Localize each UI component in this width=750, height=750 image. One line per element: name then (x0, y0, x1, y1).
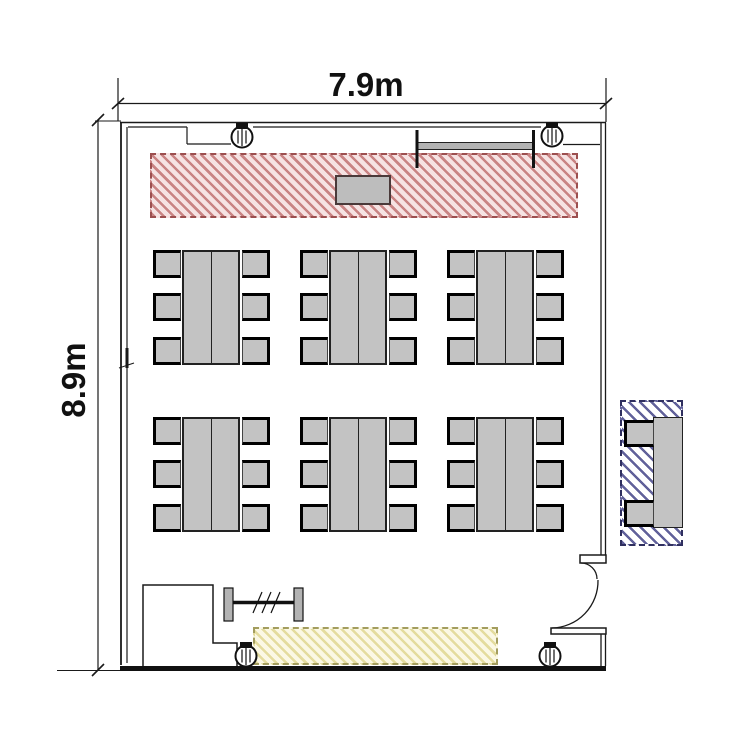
table-group (447, 250, 564, 365)
floor-plan-canvas: 7.9m 8.9m (0, 0, 750, 750)
back-zone (253, 627, 498, 665)
chair (242, 460, 270, 488)
chair (536, 417, 564, 445)
chair (447, 293, 475, 321)
chair (153, 460, 181, 488)
chair (536, 250, 564, 278)
side-chair (624, 420, 654, 447)
whiteboard (416, 142, 534, 150)
chair (389, 250, 417, 278)
chair (153, 250, 181, 278)
table-group (300, 417, 417, 532)
chair (153, 337, 181, 365)
podium (335, 175, 391, 205)
chair (300, 337, 328, 365)
rack-icon (224, 588, 303, 621)
table-group (153, 250, 270, 365)
table-group (153, 417, 270, 532)
chair (300, 417, 328, 445)
double-table (182, 250, 240, 365)
chair (242, 250, 270, 278)
double-table (476, 417, 534, 532)
chair (536, 293, 564, 321)
chair (536, 504, 564, 532)
chair (389, 460, 417, 488)
chair (153, 504, 181, 532)
chair (447, 504, 475, 532)
chair (447, 337, 475, 365)
chair (242, 337, 270, 365)
chair (536, 337, 564, 365)
chair (447, 460, 475, 488)
side-chair (624, 500, 654, 527)
chair (300, 460, 328, 488)
table-group (300, 250, 417, 365)
double-table (182, 417, 240, 532)
chair (153, 293, 181, 321)
chair (389, 337, 417, 365)
chair (389, 293, 417, 321)
chair (300, 504, 328, 532)
chair (242, 293, 270, 321)
chair (389, 417, 417, 445)
double-table (329, 417, 387, 532)
chair (300, 250, 328, 278)
chair (153, 417, 181, 445)
side-table (653, 417, 683, 528)
width-dimension-label: 7.9m (316, 66, 416, 104)
door (551, 555, 606, 634)
chair (300, 293, 328, 321)
chair (389, 504, 417, 532)
chair (242, 417, 270, 445)
chair (536, 460, 564, 488)
table-group (447, 417, 564, 532)
chair (447, 250, 475, 278)
chair (242, 504, 270, 532)
double-table (476, 250, 534, 365)
chair (447, 417, 475, 445)
height-dimension-label: 8.9m (55, 330, 93, 430)
double-table (329, 250, 387, 365)
